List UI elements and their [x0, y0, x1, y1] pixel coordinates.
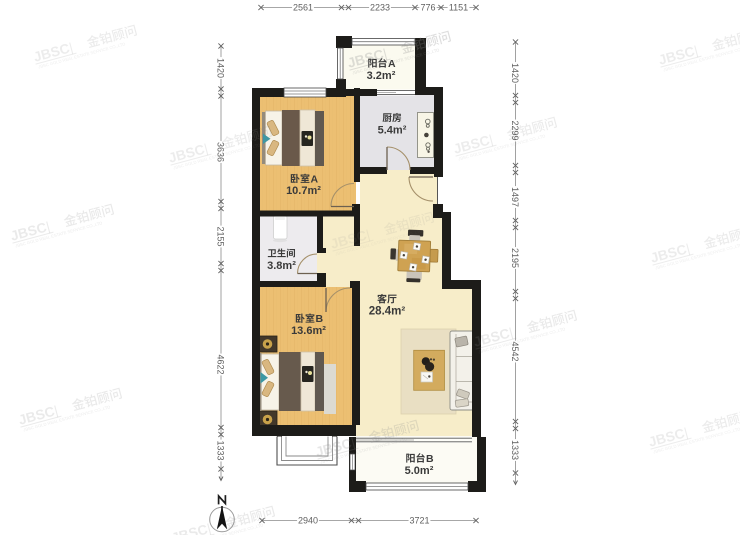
svg-text:28.4m²: 28.4m²: [369, 306, 406, 318]
svg-text:10.7m²: 10.7m²: [286, 185, 321, 197]
svg-text:A: A: [311, 173, 319, 185]
svg-text:2155: 2155: [216, 226, 226, 246]
svg-text:B: B: [316, 313, 324, 325]
svg-text:13.6m²: 13.6m²: [291, 325, 326, 337]
svg-text:2233: 2233: [370, 3, 390, 13]
svg-text:1333: 1333: [216, 440, 226, 460]
svg-text:1420: 1420: [216, 58, 226, 78]
svg-text:1420: 1420: [510, 63, 520, 83]
svg-text:776: 776: [420, 3, 435, 13]
svg-text:2195: 2195: [510, 248, 520, 268]
svg-text:1497: 1497: [510, 187, 520, 207]
svg-text:4622: 4622: [216, 354, 226, 374]
svg-text:5.0m²: 5.0m²: [405, 465, 434, 477]
svg-text:5.4m²: 5.4m²: [378, 124, 407, 136]
svg-text:1151: 1151: [449, 3, 468, 13]
svg-text:B: B: [426, 453, 434, 465]
svg-text:1333: 1333: [510, 440, 520, 460]
svg-text:3.8m²: 3.8m²: [267, 260, 296, 272]
svg-text:3721: 3721: [409, 516, 429, 526]
svg-text:2940: 2940: [298, 516, 318, 526]
svg-text:3.2m²: 3.2m²: [367, 70, 396, 82]
svg-text:2561: 2561: [293, 3, 313, 13]
